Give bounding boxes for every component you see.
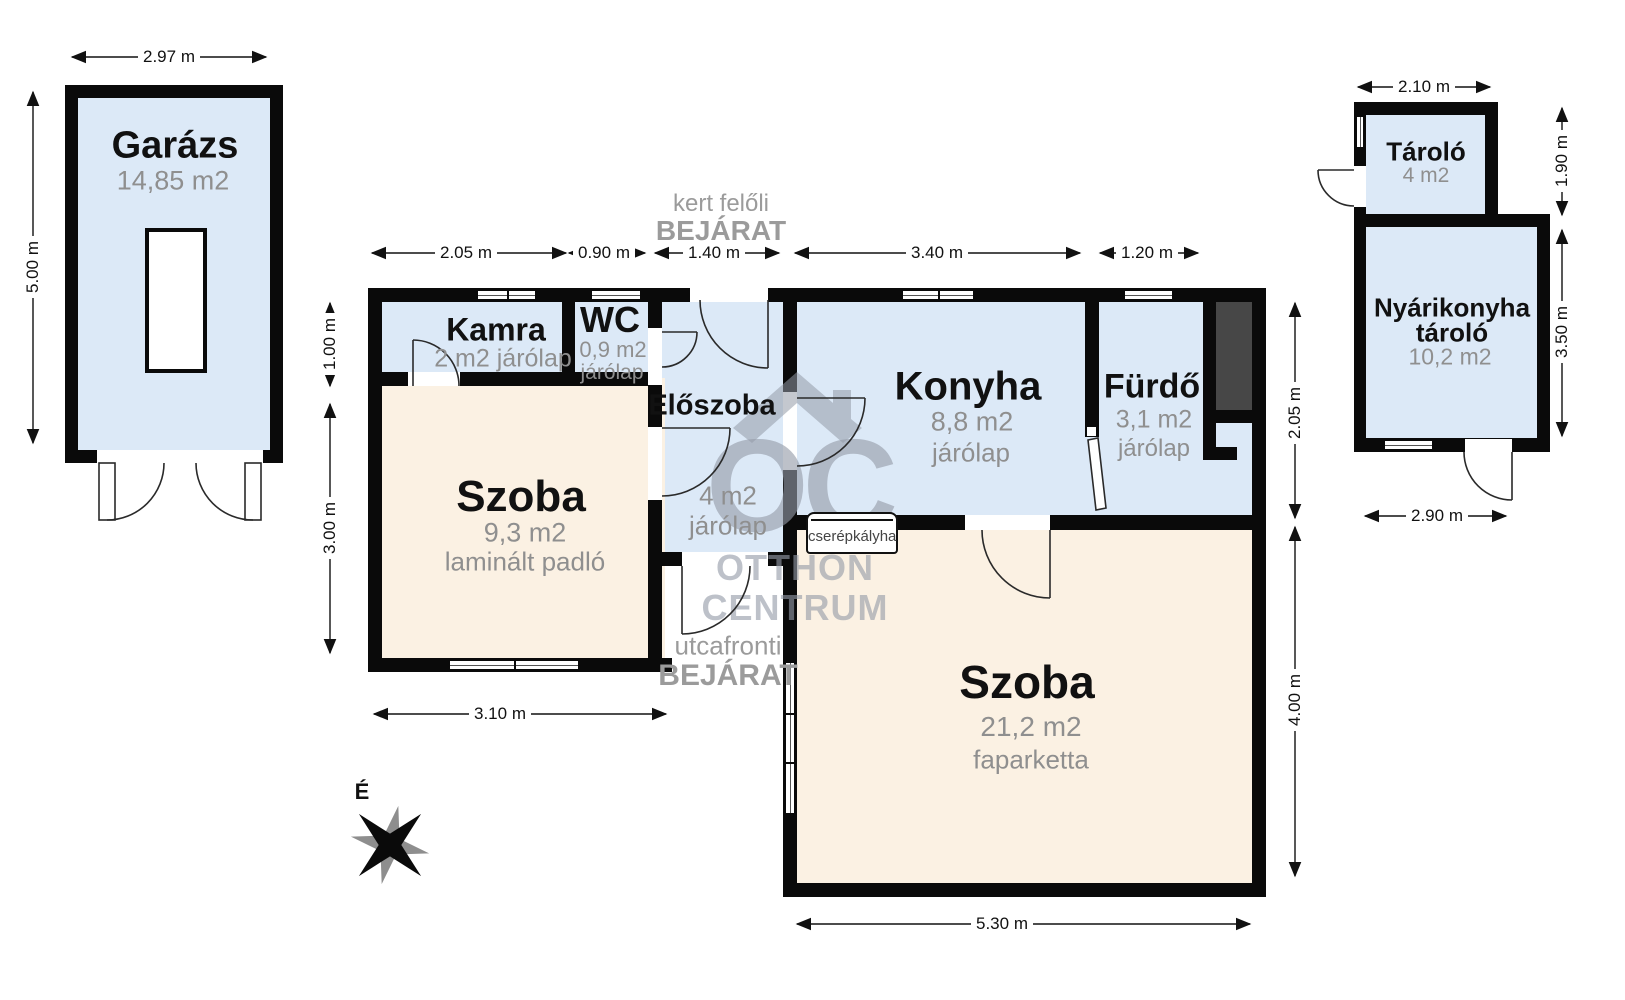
wall bbox=[1252, 288, 1266, 897]
dim-garage-width: 2.97 m bbox=[138, 47, 200, 67]
dim-top-1: 2.05 m bbox=[435, 243, 497, 263]
street-entrance-line1: utcafronti bbox=[675, 631, 782, 662]
wall bbox=[1203, 447, 1237, 460]
wall bbox=[1216, 410, 1252, 423]
eloszoba-floor: járólap bbox=[689, 511, 767, 542]
dim-right-2: 4.00 m bbox=[1285, 669, 1305, 731]
window bbox=[450, 659, 578, 671]
compass-north-label: É bbox=[355, 779, 370, 805]
eloszoba-area: 4 m2 bbox=[699, 481, 757, 512]
eloszoba-name: Előszoba bbox=[648, 390, 775, 423]
garage-area: 14,85 m2 bbox=[117, 166, 230, 197]
szoba2-name: Szoba bbox=[959, 655, 1094, 709]
dim-left-2: 3.00 m bbox=[320, 497, 340, 559]
floor-plan: OC OTTHON CENTRUM Garázs 14,85 m2 Kamra … bbox=[0, 0, 1625, 1000]
dim-out-bottom: 2.90 m bbox=[1406, 506, 1468, 526]
garage-name: Garázs bbox=[112, 125, 239, 168]
tile-stove: cserépkályha bbox=[806, 512, 898, 554]
dim-out-right-lower: 3.50 m bbox=[1552, 301, 1572, 363]
door-gap-szoba2 bbox=[965, 515, 1050, 530]
furdo-area: 3,1 m2 bbox=[1116, 406, 1192, 435]
door-gap-szoba1 bbox=[648, 427, 662, 500]
street-entrance-line2: BEJÁRAT bbox=[658, 659, 797, 693]
wall bbox=[783, 883, 1266, 897]
garage-door-opening bbox=[97, 450, 263, 463]
konyha-name: Konyha bbox=[895, 365, 1042, 410]
door-gap-kamra bbox=[408, 372, 460, 386]
door-gap-nyarikonyha bbox=[1465, 439, 1512, 452]
dim-top-4: 3.40 m bbox=[906, 243, 968, 263]
wall bbox=[1203, 288, 1216, 458]
door-gap-wc bbox=[648, 328, 662, 385]
furdo-floor: járólap bbox=[1118, 435, 1190, 463]
dim-top-5: 1.20 m bbox=[1116, 243, 1178, 263]
wall bbox=[1354, 102, 1498, 115]
wall bbox=[65, 85, 283, 98]
kamra-area: 2 m2 járólap bbox=[434, 345, 572, 374]
dim-out-top: 2.10 m bbox=[1393, 77, 1455, 97]
furdo-name: Fürdő bbox=[1104, 368, 1200, 407]
window bbox=[478, 289, 535, 301]
dim-top-3: 1.40 m bbox=[683, 243, 745, 263]
wc-floor: járólap bbox=[580, 361, 643, 385]
konyha-area: 8,8 m2 bbox=[931, 407, 1014, 438]
wc-name: WC bbox=[580, 299, 640, 341]
wall bbox=[1354, 214, 1550, 227]
szoba1-area: 9,3 m2 bbox=[484, 518, 567, 549]
wall bbox=[65, 85, 78, 463]
kamra-name: Kamra bbox=[446, 312, 546, 349]
compass-icon bbox=[328, 783, 452, 907]
szoba1-name: Szoba bbox=[456, 472, 586, 522]
wall bbox=[1085, 288, 1099, 437]
door-gap-tarolo bbox=[1354, 166, 1366, 207]
furdo-wall-end-cap bbox=[1086, 426, 1097, 437]
dim-right-1: 2.05 m bbox=[1285, 382, 1305, 444]
wall bbox=[1537, 214, 1550, 452]
wall bbox=[1354, 438, 1550, 452]
wall bbox=[270, 85, 283, 463]
window bbox=[903, 289, 973, 301]
nyarikonyha-area: 10,2 m2 bbox=[1408, 344, 1491, 371]
garden-entrance-line1: kert felőli bbox=[673, 190, 769, 218]
dim-garage-height: 5.00 m bbox=[23, 236, 43, 298]
wc-area: 0,9 m2 bbox=[579, 337, 646, 363]
wall bbox=[1485, 102, 1498, 214]
szoba2-floor: faparketta bbox=[973, 745, 1089, 776]
dim-left-1: 1.00 m bbox=[320, 313, 340, 375]
garage-inspection-pit bbox=[145, 228, 207, 373]
tarolo-name: Tároló bbox=[1386, 137, 1465, 168]
szoba2-area: 21,2 m2 bbox=[980, 711, 1081, 743]
tarolo-area: 4 m2 bbox=[1403, 164, 1450, 188]
watermark-line2: CENTRUM bbox=[695, 587, 895, 629]
tile-stove-label: cserépkályha bbox=[808, 528, 896, 545]
wall bbox=[1354, 214, 1366, 452]
chimney bbox=[1216, 302, 1252, 410]
dim-top-2: 0.90 m bbox=[573, 243, 635, 263]
window bbox=[1385, 439, 1432, 451]
window bbox=[1125, 289, 1172, 301]
wall bbox=[648, 566, 662, 672]
dim-bottom-left: 3.10 m bbox=[469, 704, 531, 724]
dim-bottom-right: 5.30 m bbox=[971, 914, 1033, 934]
door-gap-garden-entrance bbox=[690, 288, 768, 302]
konyha-floor: járólap bbox=[932, 438, 1010, 469]
wall bbox=[368, 288, 382, 672]
szoba1-floor: laminált padló bbox=[445, 547, 605, 578]
window bbox=[1355, 117, 1365, 147]
dim-out-right-upper: 1.90 m bbox=[1552, 130, 1572, 192]
